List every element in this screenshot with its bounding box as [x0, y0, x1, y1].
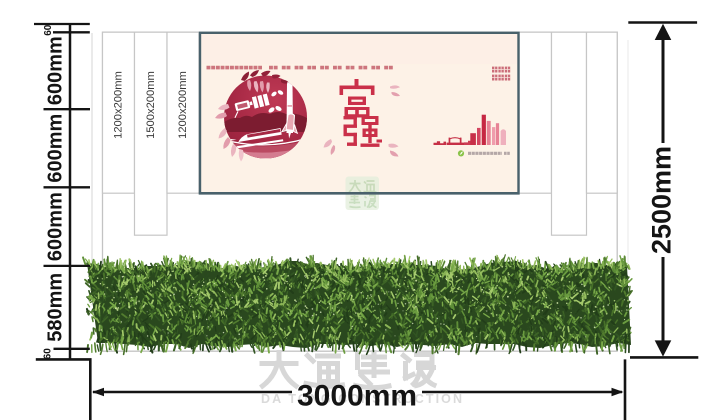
svg-text:1200x200mm: 1200x200mm: [112, 71, 124, 139]
svg-text:2500mm: 2500mm: [647, 146, 677, 254]
svg-text:600mm: 600mm: [44, 114, 66, 183]
svg-text:600mm: 600mm: [44, 192, 66, 261]
svg-text:580mm: 580mm: [44, 273, 66, 342]
svg-text:60: 60: [43, 24, 54, 36]
svg-text:1200x200mm: 1200x200mm: [177, 71, 189, 139]
svg-text:60: 60: [43, 348, 54, 360]
svg-text:600mm: 600mm: [44, 36, 66, 105]
svg-text:1500x200mm: 1500x200mm: [145, 71, 157, 139]
svg-text:3000mm: 3000mm: [297, 380, 417, 413]
